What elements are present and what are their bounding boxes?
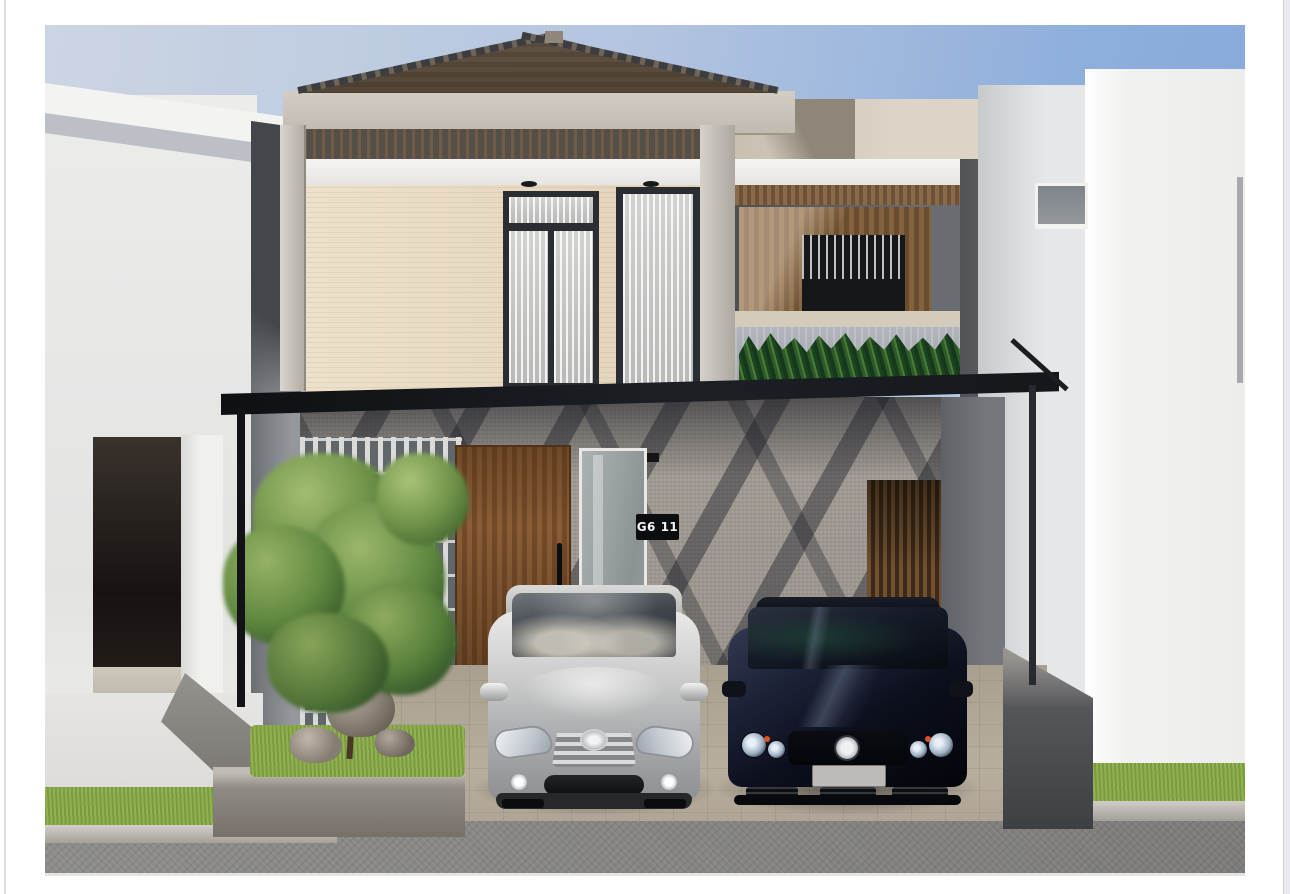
- balcony-louver-window: [802, 235, 905, 311]
- upper-soffit-wood: [304, 129, 702, 161]
- pillar-right: [700, 125, 735, 391]
- pillar-left: [280, 125, 306, 391]
- car-headlight-right-outer: [929, 733, 953, 757]
- planter-wall: [213, 767, 465, 837]
- car-foglight-right: [660, 773, 678, 791]
- car-foglight-left: [510, 773, 528, 791]
- window-pane: [509, 231, 548, 383]
- silver-hatchback-car: [488, 585, 700, 807]
- render-bottom-shadow: [45, 873, 1245, 876]
- page: { "scene": { "type": "3d-architectural-e…: [0, 0, 1290, 894]
- downlight-icon: [521, 181, 537, 187]
- page-edge-line-right: [1283, 0, 1290, 894]
- car-mirror-left: [480, 683, 508, 701]
- car-license-plate: [812, 765, 886, 787]
- car-badge: [582, 731, 606, 749]
- car-bumper-lip: [734, 795, 961, 805]
- right-house-small-window: [1035, 183, 1088, 229]
- car-windshield: [512, 593, 676, 657]
- car-windshield: [748, 607, 948, 669]
- page-edge-line-left: [4, 0, 6, 894]
- left-house-entry-opening: [93, 437, 181, 697]
- car-wheel: [502, 799, 544, 808]
- window-pane: [554, 231, 593, 383]
- tree-foliage: [377, 453, 469, 545]
- car-hood-gloss: [518, 667, 670, 721]
- car-headlight-left-inner: [768, 741, 785, 758]
- car-wheel: [644, 799, 686, 808]
- house-number-sign: G6 11: [636, 514, 679, 540]
- car-lower-intake: [544, 775, 644, 795]
- black-sedan-car: [728, 597, 967, 803]
- window-transom-pane: [509, 197, 593, 223]
- window-pane: [623, 194, 693, 386]
- garden-rock: [290, 727, 342, 763]
- car-mirror-right: [680, 683, 708, 701]
- upper-window-right: [616, 187, 700, 393]
- car-turn-signal-left: [764, 736, 770, 742]
- car-hood-gloss: [748, 665, 948, 727]
- roof-peak-cap: [545, 31, 563, 43]
- left-house-porch-column: [181, 435, 223, 697]
- tree-foliage: [267, 613, 389, 713]
- canopy-post-right: [1029, 385, 1036, 685]
- car-turn-signal-right: [925, 736, 931, 742]
- car-mirror-left: [722, 681, 746, 697]
- right-house-shadow-strip: [1237, 177, 1243, 383]
- canopy-post-left: [237, 407, 245, 707]
- right-house-front-volume: [1085, 69, 1245, 859]
- car-badge: [836, 737, 858, 759]
- upper-window-left: [503, 191, 599, 389]
- garden-rock: [375, 729, 415, 757]
- car-headlight-right-inner: [910, 741, 927, 758]
- render-canvas: G6 11: [45, 25, 1245, 873]
- car-headlight-left-outer: [742, 733, 766, 757]
- car-mirror-right: [949, 681, 973, 697]
